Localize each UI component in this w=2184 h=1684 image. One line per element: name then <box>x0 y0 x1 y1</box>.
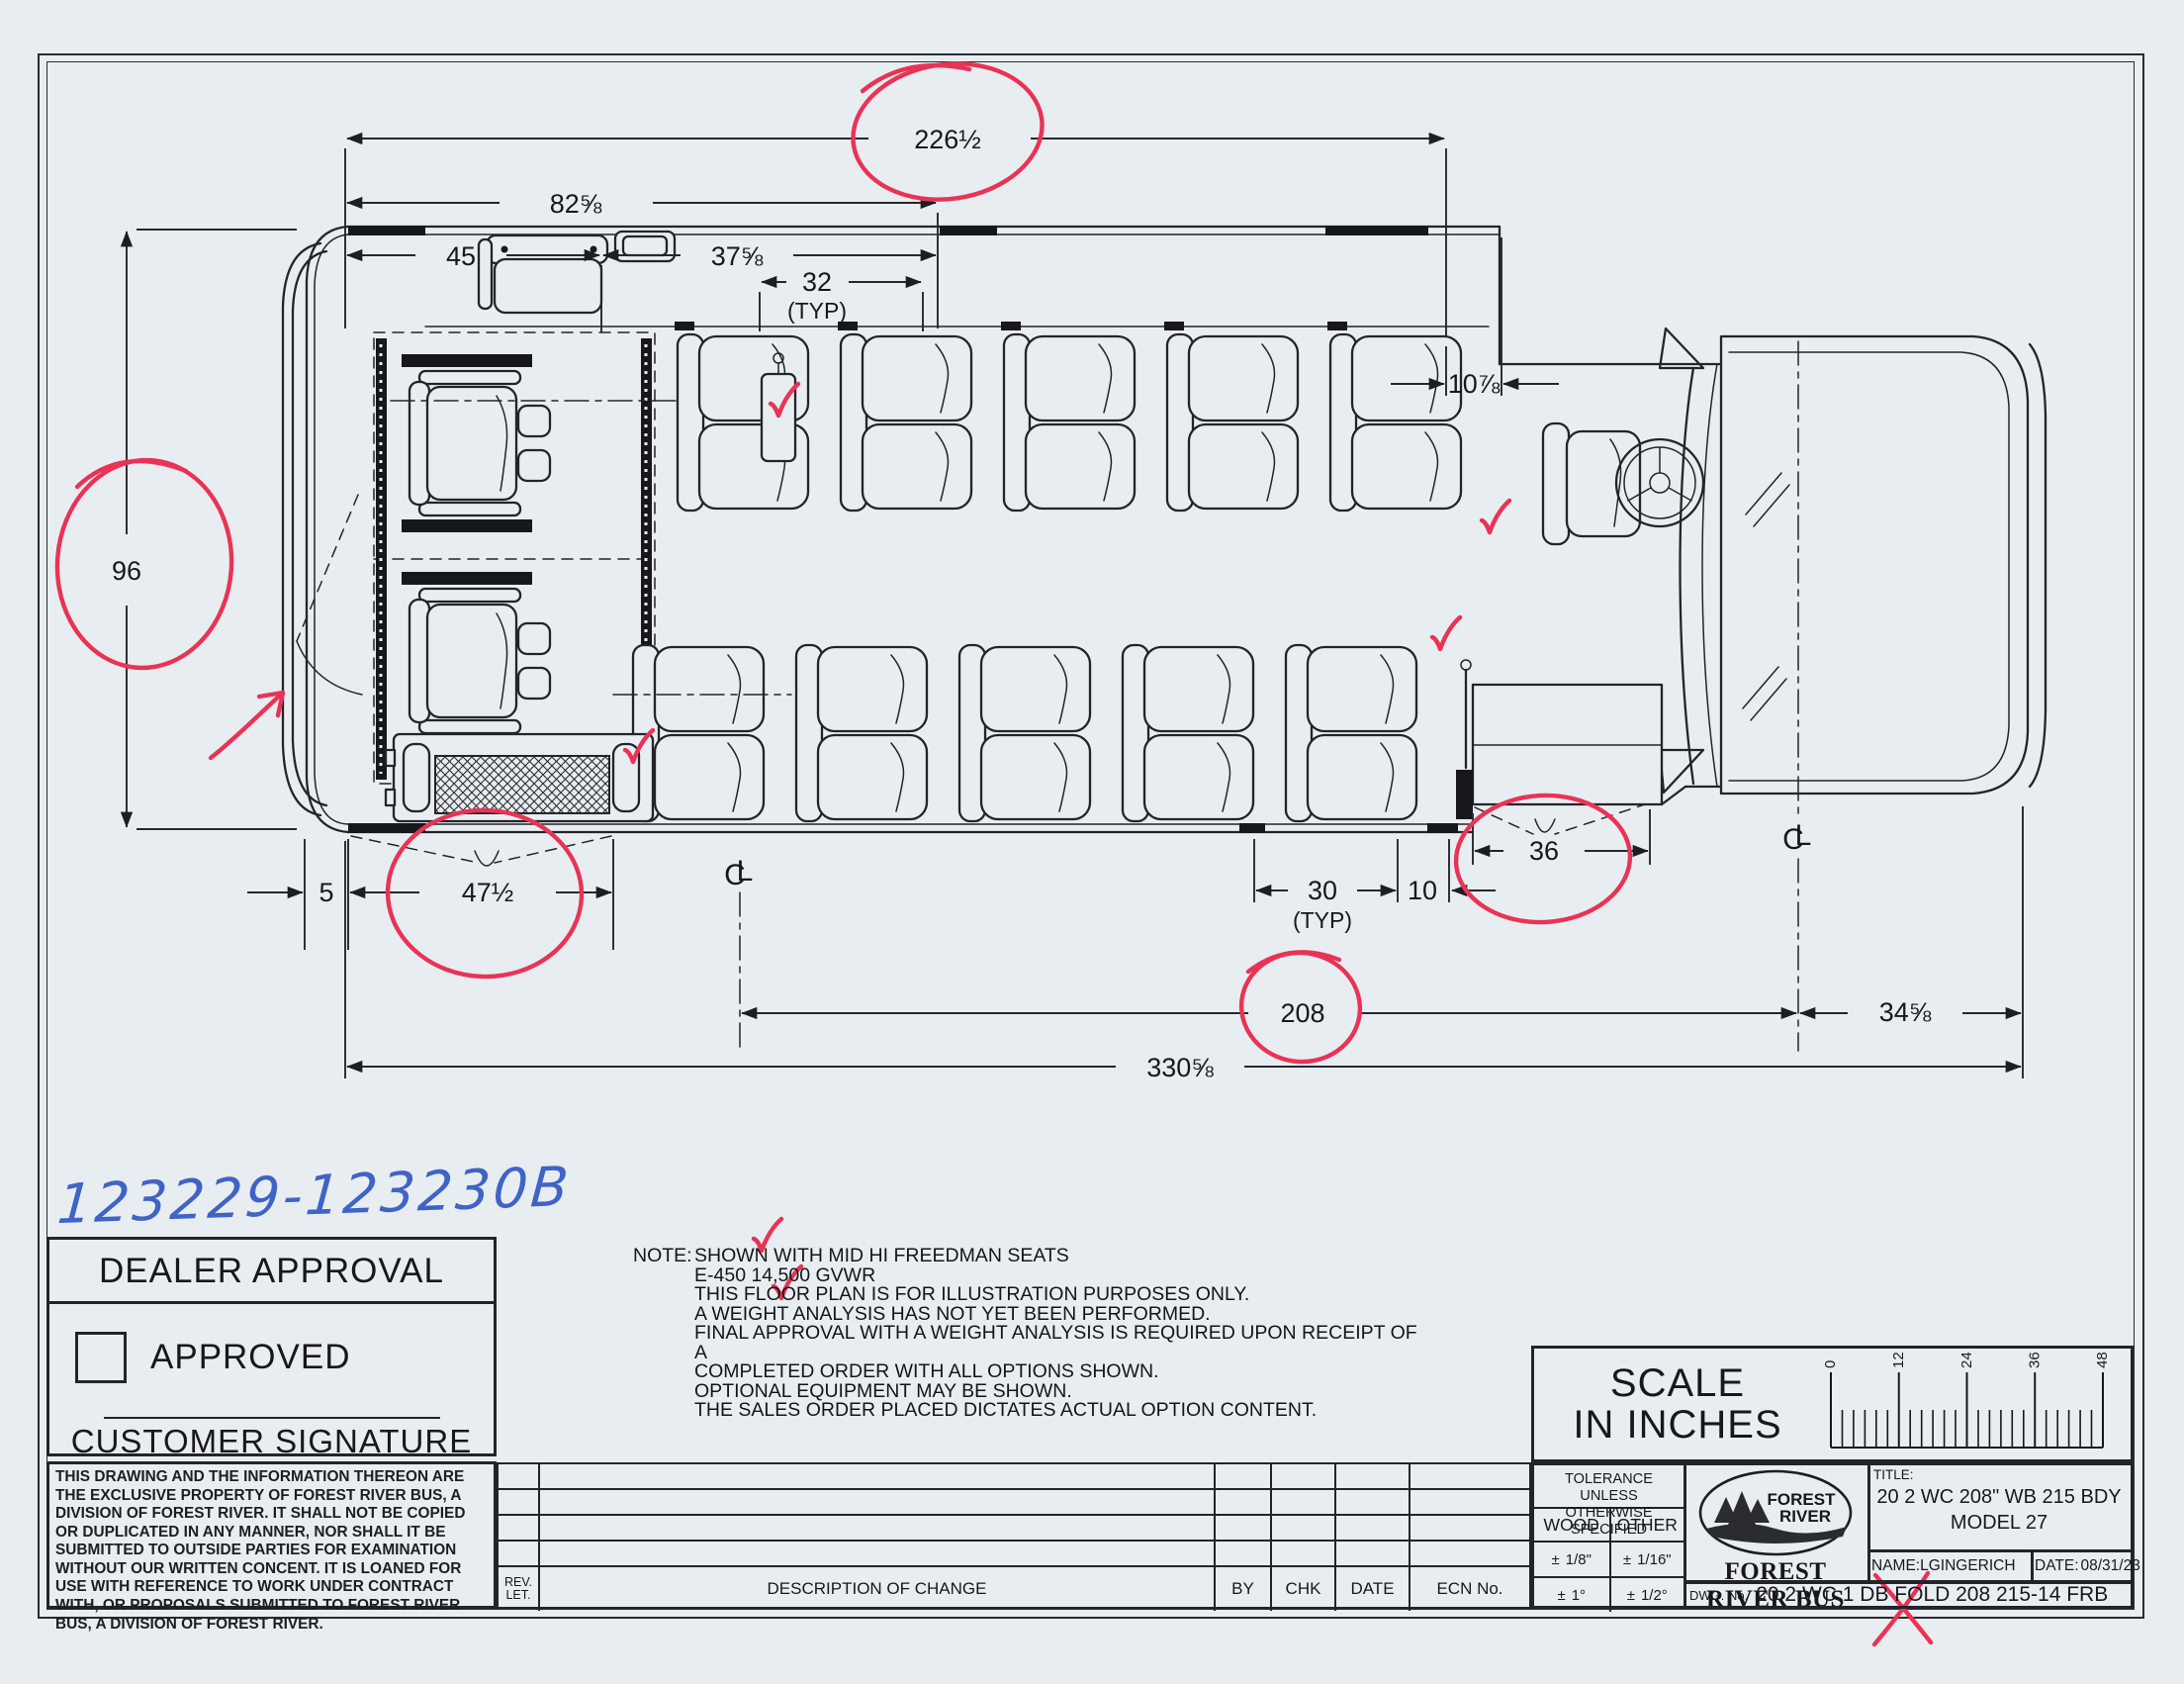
ruler-tick-12: 12 <box>1890 1352 1907 1368</box>
ruler-tick-48: 48 <box>2094 1352 2111 1368</box>
dim-seat-pitch-bottom-typ: (TYP) <box>1293 907 1352 933</box>
tolerance-block: TOLERANCE UNLESS OTHERWISE SPECIFIED WOO… <box>1531 1462 1686 1609</box>
note-line-8: THE SALES ORDER PLACED DICTATES ACTUAL O… <box>694 1401 1424 1421</box>
ruler-tick-36: 36 <box>2027 1352 2044 1368</box>
front-cabinet <box>615 232 675 261</box>
dim-bumper-gap: 5 <box>318 878 333 907</box>
scale-box: SCALE IN INCHES 0 12 24 36 48 <box>1531 1346 2134 1462</box>
driver-seat <box>1543 423 1640 544</box>
red-check-front-seat <box>1432 617 1460 649</box>
ruler-tick-0: 0 <box>1822 1360 1839 1368</box>
tolerance-other-linear: ±1/16" <box>1609 1543 1684 1576</box>
dim-entry-door: 36 <box>1529 836 1559 866</box>
dimensions: 226½ 82⅝ 45 37⅝ 32 (TYP) 10⅞ 96 <box>112 125 2023 1082</box>
drafter-name: LGINGERICH <box>1920 1557 2015 1575</box>
legal-notice: THIS DRAWING AND THE INFORMATION THEREON… <box>46 1461 497 1609</box>
ecn-header: ECN No. <box>1409 1567 1529 1611</box>
dim-overall-body: 226½ <box>914 125 981 154</box>
rear-axle-cl-label-l: L <box>737 855 754 888</box>
dim-wheelbase: 208 <box>1280 998 1324 1028</box>
dim-wc-seg: 37⅝ <box>711 241 764 271</box>
dim-rear-door-opening: 47½ <box>462 878 514 907</box>
tolerance-other-angle: ±1/2° <box>1609 1578 1684 1612</box>
tolerance-wood-header: WOOD <box>1534 1509 1609 1541</box>
date-cell: DATE:08/31/23 <box>2031 1549 2134 1583</box>
dim-seat-pitch-top: 32 <box>802 267 832 297</box>
drawing-date: 08/31/23 <box>2081 1557 2140 1575</box>
approved-label: APPROVED <box>150 1338 351 1377</box>
description-header: DESCRIPTION OF CHANGE <box>538 1567 1214 1611</box>
windshield-wipers <box>1743 473 1789 720</box>
ruler-tick-24: 24 <box>1958 1352 1975 1368</box>
note-line-3: THIS FLOOR PLAN IS FOR ILLUSTRATION PURP… <box>694 1285 1424 1305</box>
front-axle-cl-label-l: L <box>1795 819 1812 852</box>
note-line-6: COMPLETED ORDER WITH ALL OPTIONS SHOWN. <box>694 1362 1424 1382</box>
drawing-title-line2: MODEL 27 <box>1873 1512 2125 1535</box>
note-line-1: SHOWN WITH MID HI FREEDMAN SEATS <box>694 1247 1069 1266</box>
dim-rear-to-wc-end: 82⅝ <box>550 189 602 219</box>
flip-seat <box>479 235 607 313</box>
seat-row-curb-side <box>633 645 1416 821</box>
customer-signature-label: CUSTOMER SIGNATURE <box>49 1423 494 1460</box>
dealer-approval-box: DEALER APPROVAL APPROVED CUSTOMER SIGNAT… <box>46 1237 497 1456</box>
scanned-drawing-sheet: { "handwriting": { "job_number": "123229… <box>0 0 2184 1684</box>
dim-cowl-gap: 10⅞ <box>1448 369 1501 399</box>
note-block: NOTE: SHOWN WITH MID HI FREEDMAN SEATS E… <box>633 1247 1424 1421</box>
dim-seat-pitch-top-typ: (TYP) <box>787 298 847 324</box>
rear-luggage-rack <box>386 734 653 821</box>
red-arrow-rear <box>211 693 283 758</box>
title-label: TITLE: <box>1873 1467 2125 1482</box>
dwg-number-row: DWG. No. 20 2 WC 1 DB FOLD 208 215-14 FR… <box>1683 1581 2134 1609</box>
tolerance-other-header: OTHER <box>1609 1509 1684 1541</box>
dim-overall-length: 330⅝ <box>1146 1053 1214 1082</box>
approved-checkbox[interactable] <box>75 1332 127 1383</box>
date-header: DATE <box>1334 1567 1409 1611</box>
scale-ruler: 0 12 24 36 48 <box>1821 1349 2118 1459</box>
forest-river-logo: FOREST RIVER <box>1684 1467 1867 1558</box>
drawing-title-line1: 20 2 WC 208" WB 215 BDY <box>1873 1486 2125 1509</box>
revision-table: REV.LET. DESCRIPTION OF CHANGE BY CHK DA… <box>497 1462 1531 1609</box>
note-label: NOTE: <box>633 1247 694 1266</box>
name-cell: NAME:LGINGERICH <box>1867 1549 2034 1583</box>
rev-let-header: REV.LET. <box>499 1567 538 1611</box>
scale-caption: SCALE IN INCHES <box>1534 1362 1821 1446</box>
dealer-approval-title: DEALER APPROVAL <box>49 1240 494 1304</box>
windshield <box>1681 368 1694 784</box>
dim-body-width: 96 <box>112 556 141 586</box>
dim-seat-pitch-bottom: 30 <box>1308 876 1337 905</box>
chk-header: CHK <box>1270 1567 1334 1611</box>
by-header: BY <box>1214 1567 1270 1611</box>
dim-rear-seg: 45 <box>446 241 476 271</box>
tolerance-caption: TOLERANCE UNLESS OTHERWISE SPECIFIED <box>1534 1465 1683 1509</box>
dim-front-overhang: 34⅝ <box>1879 997 1932 1027</box>
dim-door-gap: 10 <box>1408 876 1437 905</box>
tolerance-wood-linear: ±1/8" <box>1534 1543 1609 1576</box>
dwg-number: 20 2 WC 1 DB FOLD 208 215-14 FRB <box>1756 1583 2108 1607</box>
svg-text:RIVER: RIVER <box>1779 1507 1831 1526</box>
customer-signature-line[interactable] <box>104 1417 440 1419</box>
tolerance-wood-angle: ±1° <box>1534 1578 1609 1612</box>
note-line-5: FINAL APPROVAL WITH A WEIGHT ANALYSIS IS… <box>694 1324 1424 1362</box>
title-area: TITLE: 20 2 WC 208" WB 215 BDY MODEL 27 <box>1867 1462 2134 1549</box>
red-check-driver <box>1482 501 1509 532</box>
logo-block: FOREST RIVER FOREST RIVER BUS <box>1683 1462 1870 1583</box>
